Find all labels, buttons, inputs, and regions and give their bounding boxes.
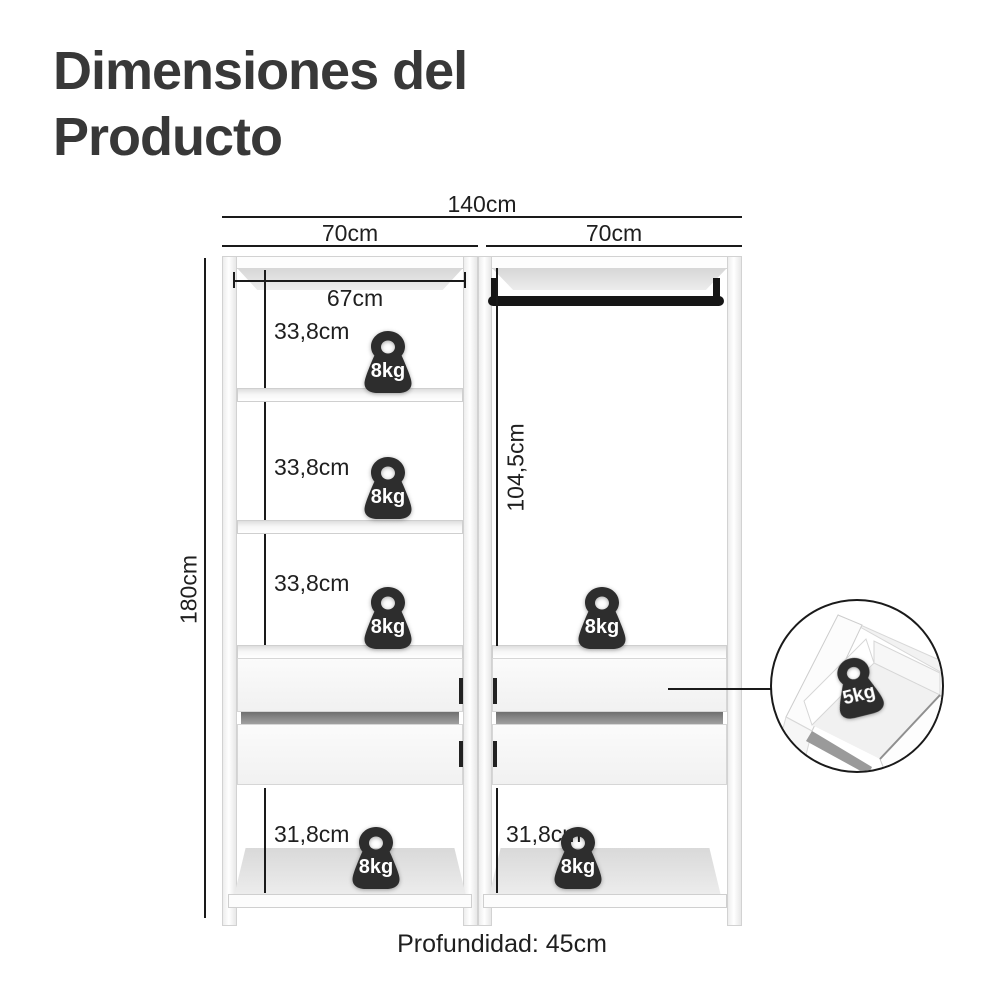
hanging-rod	[488, 296, 724, 306]
top-underside-right	[492, 268, 727, 290]
product-dimensions-diagram: Dimensiones del Producto 140cm 70cm 70cm…	[0, 0, 1000, 1000]
dim-right-width-line	[486, 245, 742, 247]
shelf-1	[237, 388, 463, 402]
dim-inner-width-label: 67cm	[255, 285, 455, 312]
dim-bottom-left-label: 31,8cm	[274, 821, 349, 848]
dim-opening3-label: 33,8cm	[274, 570, 349, 597]
weight-badge-label: 8kg	[542, 856, 614, 879]
page-title-line2: Producto	[53, 104, 467, 170]
dim-bottom-right-line	[496, 788, 498, 893]
drawer-pull-notch	[459, 741, 463, 767]
dim-opening2-label: 33,8cm	[274, 454, 349, 481]
drawer-pull-notch	[493, 741, 497, 767]
drawer-pull-notch	[459, 678, 463, 704]
dim-inner-width-line	[233, 280, 466, 282]
frame-post-mid-right	[478, 256, 492, 926]
frame-post-mid-left	[463, 256, 478, 926]
dim-left-width-label: 70cm	[222, 220, 478, 247]
dim-total-width-line	[222, 216, 742, 218]
frame-post-left	[222, 256, 237, 926]
weight-badge: 8kg	[340, 826, 412, 890]
dim-opening2-line	[264, 402, 266, 520]
weight-badge-label: 8kg	[352, 616, 424, 639]
weight-badge-label: 8kg	[352, 486, 424, 509]
dim-hanging-height-label: 104,5cm	[503, 413, 530, 523]
weight-badge: 8kg	[566, 586, 638, 650]
dim-total-height-label: 180cm	[176, 545, 203, 635]
weight-badge-label: 8kg	[352, 360, 424, 383]
weight-badge: 8kg	[352, 456, 424, 520]
dim-opening1-label: 33,8cm	[274, 318, 349, 345]
dim-total-width-label: 140cm	[222, 191, 742, 218]
shelf-2	[237, 520, 463, 534]
drawer-inset-circle: 5kg	[770, 599, 944, 773]
drawer-pull-notch	[493, 678, 497, 704]
callout-line	[668, 688, 772, 690]
frame-post-right	[727, 256, 742, 926]
dim-hanging-height-line	[496, 268, 498, 646]
dim-opening1-line	[264, 270, 266, 388]
dim-opening3-line	[264, 534, 266, 645]
weight-badge-label: 8kg	[566, 616, 638, 639]
drawer-gap-right	[496, 712, 723, 724]
dim-total-height-line	[204, 258, 206, 918]
bottom-shelf-front-left	[228, 894, 472, 908]
page-title-line1: Dimensiones del	[53, 38, 467, 104]
weight-badge: 8kg	[352, 330, 424, 394]
page-title: Dimensiones del Producto	[53, 38, 467, 170]
drawer-top-slab-left	[237, 645, 463, 659]
dim-inner-width-tick	[464, 272, 466, 288]
weight-badge-label: 8kg	[340, 856, 412, 879]
drawer-front-left-top	[237, 658, 463, 712]
drawer-gap-left	[241, 712, 459, 724]
dim-bottom-left-line	[264, 788, 266, 893]
dim-inner-width-tick	[233, 272, 235, 288]
bottom-shelf-front-right	[483, 894, 727, 908]
weight-badge: 8kg	[352, 586, 424, 650]
drawer-front-right-top	[492, 658, 727, 712]
weight-badge: 8kg	[542, 826, 614, 890]
dim-right-width-label: 70cm	[486, 220, 742, 247]
drawer-front-right-bottom	[492, 724, 727, 785]
dim-left-width-line	[222, 245, 478, 247]
depth-label: Profundidad: 45cm	[302, 930, 702, 959]
drawer-front-left-bottom	[237, 724, 463, 785]
